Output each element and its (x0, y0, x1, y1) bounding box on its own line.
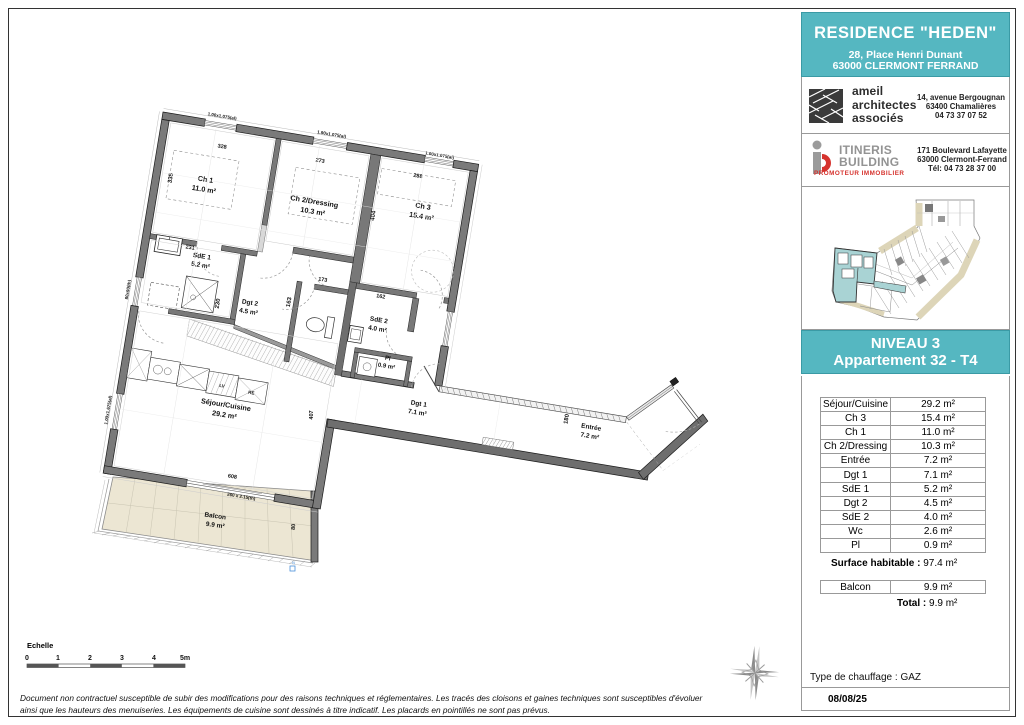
svg-text:4.5 m²: 4.5 m² (239, 307, 260, 317)
svg-text:1: 1 (56, 655, 60, 662)
svg-text:230: 230 (215, 298, 223, 310)
svg-text:3: 3 (120, 655, 124, 662)
svg-text:N: N (292, 560, 295, 565)
svg-text:0: 0 (25, 655, 29, 662)
svg-text:Dgt 2: Dgt 2 (241, 298, 259, 308)
svg-text:Pl: Pl (384, 356, 391, 363)
svg-text:163: 163 (286, 296, 294, 308)
svg-text:1.90x1.075(al): 1.90x1.075(al) (317, 129, 347, 139)
svg-text:7.2 m²: 7.2 m² (580, 432, 601, 442)
svg-text:SdE 2: SdE 2 (369, 316, 388, 326)
svg-text:404: 404 (370, 210, 378, 222)
svg-text:328: 328 (217, 143, 227, 150)
svg-text:7.1 m²: 7.1 m² (407, 408, 428, 418)
svg-text:173: 173 (318, 277, 328, 284)
svg-text:4: 4 (152, 655, 156, 662)
svg-text:5m: 5m (180, 655, 190, 662)
svg-text:162: 162 (376, 293, 386, 300)
svg-text:80x90(th): 80x90(th) (124, 279, 132, 300)
svg-text:Dgt 1: Dgt 1 (410, 399, 428, 409)
svg-text:80: 80 (291, 524, 298, 531)
svg-text:407: 407 (309, 410, 315, 419)
svg-text:231: 231 (185, 245, 195, 252)
svg-text:1.00x1.675(al): 1.00x1.675(al) (103, 395, 113, 425)
svg-text:LV: LV (219, 383, 225, 389)
svg-text:4.0 m²: 4.0 m² (368, 324, 389, 334)
svg-text:180: 180 (563, 413, 571, 425)
svg-text:0.9 m²: 0.9 m² (377, 362, 395, 372)
svg-text:2: 2 (88, 655, 92, 662)
svg-text:608: 608 (227, 474, 237, 481)
svg-text:15.4 m²: 15.4 m² (409, 210, 436, 223)
svg-text:RE: RE (248, 390, 255, 396)
svg-text:11.0 m²: 11.0 m² (191, 183, 217, 196)
